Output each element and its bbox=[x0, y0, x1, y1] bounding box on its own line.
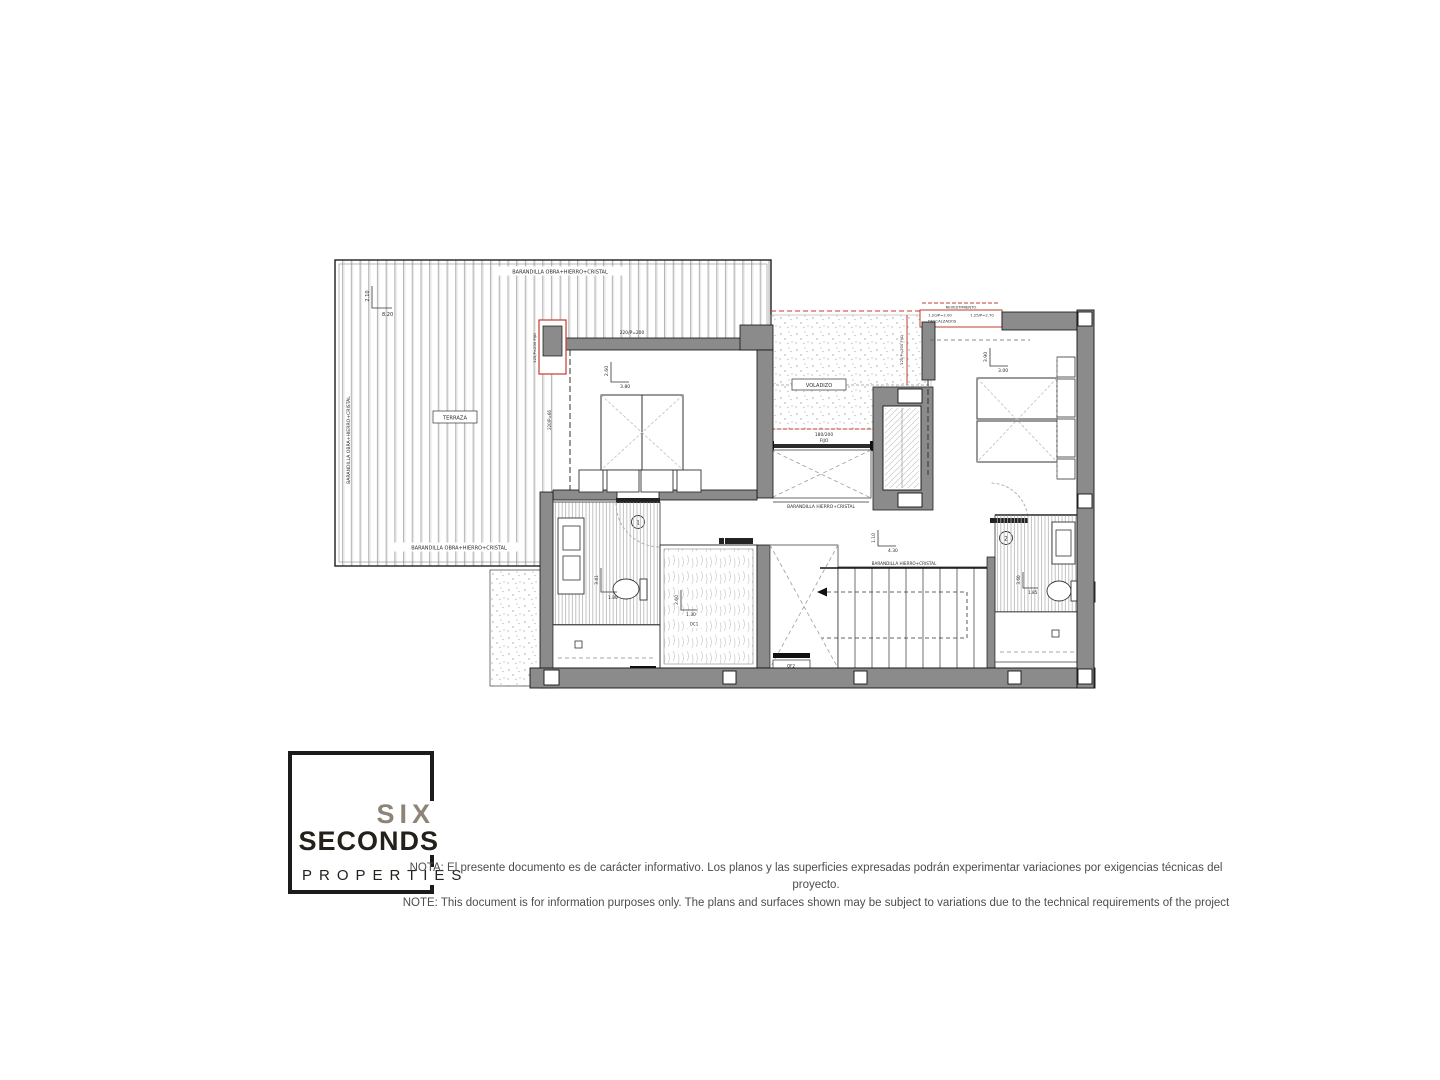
terrace-dim-v: 2.10 bbox=[365, 290, 371, 301]
bedroom1-dim-v: 2.60 bbox=[604, 366, 610, 376]
bath2-dim-v: 3.60 bbox=[1016, 575, 1021, 585]
terrace-dim-h: 8.20 bbox=[382, 312, 393, 318]
bath1-dim-v: 3.41 bbox=[594, 575, 600, 585]
bedroom1-spec-side: 220/P=66 bbox=[547, 410, 552, 430]
bath1-dim-h: 1.80 bbox=[608, 595, 618, 601]
bathroom-1: 3.41 1.80 MAMPARA OF1 bbox=[540, 492, 660, 688]
closet-door-leaf bbox=[725, 538, 753, 544]
stairs-dim-h: 4.30 bbox=[888, 548, 898, 554]
spec-125-label: 1.25/P=2.70 bbox=[970, 313, 994, 318]
closet-code: OC1 bbox=[690, 622, 699, 627]
stairs: BARANDILLA HIERRO+CRISTAL 1.10 4.30 bbox=[817, 530, 995, 668]
stair-void: OF2 80/200 bbox=[757, 545, 838, 678]
terrace-name-label: TERRAZA bbox=[442, 416, 468, 422]
stairs-railing-label: BARANDILLA HIERRO+CRISTAL bbox=[872, 561, 937, 566]
bedroom1-top-wall bbox=[560, 338, 757, 350]
disclaimer: NOTA: El presente documento es de caráct… bbox=[400, 860, 1232, 912]
logo-six-text: SIX bbox=[370, 801, 437, 828]
descalzados-spec1: 1.20/P=2.00 bbox=[928, 313, 952, 318]
bedroom1-window-spec: 220/P=200 bbox=[620, 330, 645, 336]
bath2-toilet bbox=[1047, 581, 1071, 601]
revestimiento-label: REVESTIMIENTO bbox=[946, 305, 977, 310]
voladizo-label: VOLADIZO bbox=[806, 383, 832, 389]
disclaimer-line-es: NOTA: El presente documento es de caráct… bbox=[400, 860, 1232, 895]
bedroom1-dim-h: 3.80 bbox=[620, 384, 630, 390]
terrace-railing-bottom-label: BARANDILLA OBRA+HIERRO+CRISTAL bbox=[411, 546, 507, 552]
void-railing-label: BARANDILLA HIERRO+CRISTAL bbox=[787, 504, 855, 510]
logo-seconds-text: SECONDS bbox=[292, 828, 441, 855]
terrace-railing-left-label: BARANDILLA OBRA+HIERRO+CRISTAL bbox=[346, 396, 352, 484]
fijo-window-label: FIJO bbox=[820, 438, 829, 444]
closet-dim-v: 2.60 bbox=[674, 595, 680, 605]
stairs-dim-v: 1.10 bbox=[871, 533, 877, 543]
closet: 2.60 1.30 OC1 bbox=[660, 538, 757, 668]
bedroom2-window-spec-red: 120/P=200 FIJO bbox=[899, 335, 904, 365]
bedroom1-window-spec-red: 120/P=200 FIJO bbox=[532, 333, 537, 363]
floor-plan: BARANDILLA OBRA+HIERRO+CRISTAL BARANDILL… bbox=[330, 250, 1140, 700]
terrace-railing-top-label: BARANDILLA OBRA+HIERRO+CRISTAL bbox=[512, 270, 608, 276]
bath2-dim-h: 1.85 bbox=[1028, 590, 1038, 595]
page: BARANDILLA OBRA+HIERRO+CRISTAL BARANDILL… bbox=[0, 0, 1440, 1080]
fijo-window-size: 180/200 bbox=[815, 432, 833, 438]
disclaimer-line-en: NOTE: This document is for information p… bbox=[400, 895, 1232, 912]
closet-dim-h: 1.30 bbox=[686, 612, 696, 618]
bedroom2-dim-h: 3.00 bbox=[998, 368, 1008, 374]
bedroom2-dim-v: 3.90 bbox=[983, 352, 989, 362]
glass-shaft bbox=[873, 387, 933, 510]
bedroom2-beds bbox=[977, 357, 1075, 479]
